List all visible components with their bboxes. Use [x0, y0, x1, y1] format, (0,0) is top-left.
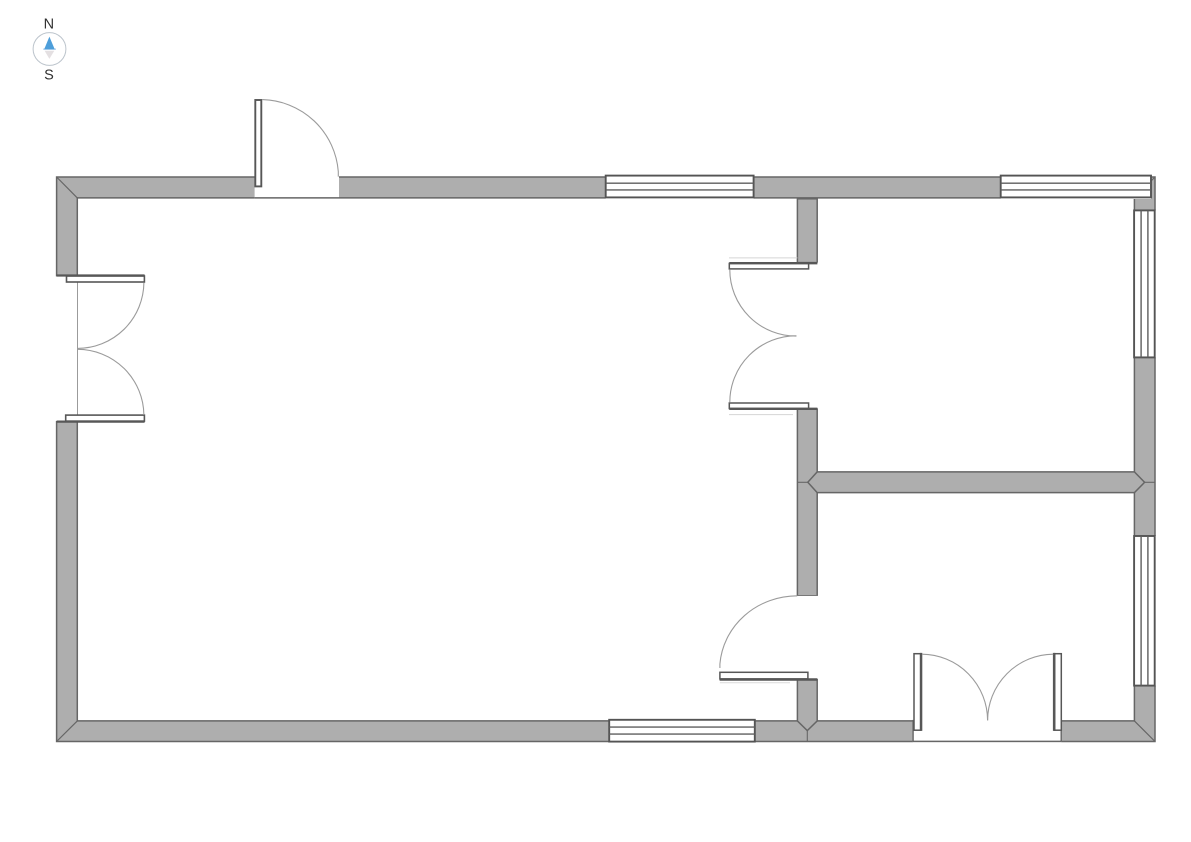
svg-text:N: N — [44, 17, 54, 33]
svg-text:S: S — [44, 68, 54, 84]
